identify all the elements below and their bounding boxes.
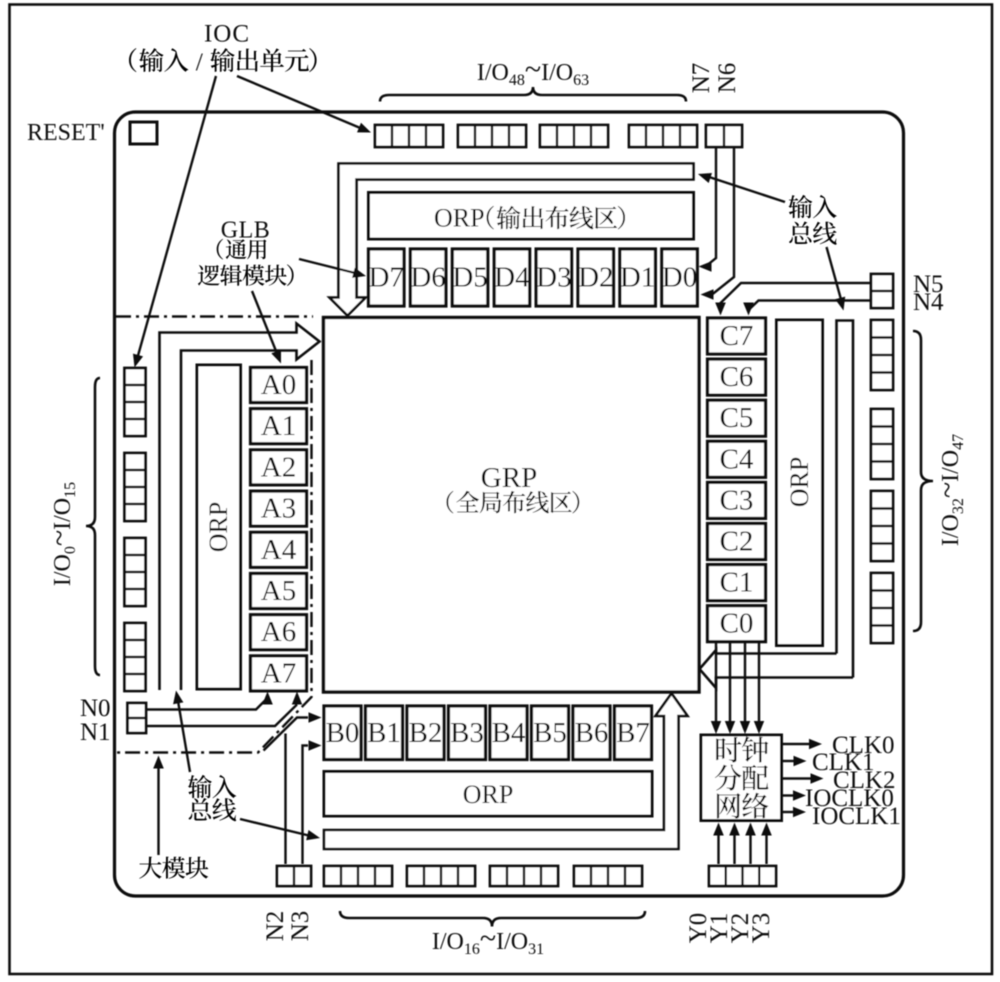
svg-text:A3: A3	[261, 493, 296, 525]
svg-text:N3: N3	[287, 911, 314, 942]
svg-text:A2: A2	[261, 451, 296, 483]
svg-text:A7: A7	[261, 657, 296, 689]
svg-text:B5: B5	[533, 717, 567, 749]
svg-text:D0: D0	[662, 262, 697, 294]
svg-text:B4: B4	[492, 717, 526, 749]
svg-text:C6: C6	[720, 361, 754, 393]
svg-text:A4: A4	[261, 534, 297, 566]
svg-text:N2: N2	[262, 911, 289, 942]
svg-text:C2: C2	[720, 526, 754, 558]
svg-text:Y3: Y3	[748, 913, 775, 944]
svg-text:D6: D6	[410, 262, 445, 294]
svg-text:D5: D5	[452, 262, 487, 294]
svg-text:GRP: GRP	[481, 462, 537, 494]
svg-text:B0: B0	[326, 717, 360, 749]
svg-text:C0: C0	[720, 608, 754, 640]
svg-text:D1: D1	[620, 262, 655, 294]
svg-text:RESET': RESET'	[27, 120, 105, 146]
svg-text:B6: B6	[575, 717, 609, 749]
svg-text:ORP: ORP	[463, 780, 514, 809]
svg-text:C1: C1	[720, 567, 754, 599]
svg-text:D4: D4	[494, 262, 530, 294]
svg-text:N4: N4	[913, 289, 944, 316]
svg-text:D3: D3	[536, 262, 571, 294]
svg-text:C4: C4	[720, 443, 754, 475]
svg-text:A5: A5	[261, 575, 296, 607]
svg-text:A0: A0	[261, 369, 296, 401]
svg-text:N0: N0	[80, 695, 111, 722]
svg-text:ORP: ORP	[204, 502, 233, 553]
svg-text:ORP: ORP	[434, 204, 485, 233]
svg-text:D2: D2	[578, 262, 613, 294]
svg-text:N6: N6	[714, 63, 741, 94]
svg-text:B1: B1	[367, 717, 401, 749]
svg-text:B3: B3	[450, 717, 484, 749]
svg-text:A1: A1	[261, 410, 296, 442]
svg-text:/: /	[196, 47, 204, 76]
svg-text:B2: B2	[409, 717, 443, 749]
svg-text:IOC: IOC	[204, 21, 250, 48]
svg-text:GLB: GLB	[221, 218, 271, 244]
svg-text:B7: B7	[616, 717, 650, 749]
svg-text:C5: C5	[720, 402, 754, 434]
svg-text:C7: C7	[720, 320, 754, 352]
svg-text:ORP: ORP	[785, 457, 814, 508]
svg-text:N1: N1	[80, 719, 111, 746]
svg-text:A6: A6	[261, 616, 296, 648]
svg-text:C3: C3	[720, 484, 754, 516]
svg-text:IOCLK1: IOCLK1	[812, 803, 901, 830]
svg-text:D7: D7	[368, 262, 403, 294]
svg-text:N7: N7	[688, 63, 715, 94]
